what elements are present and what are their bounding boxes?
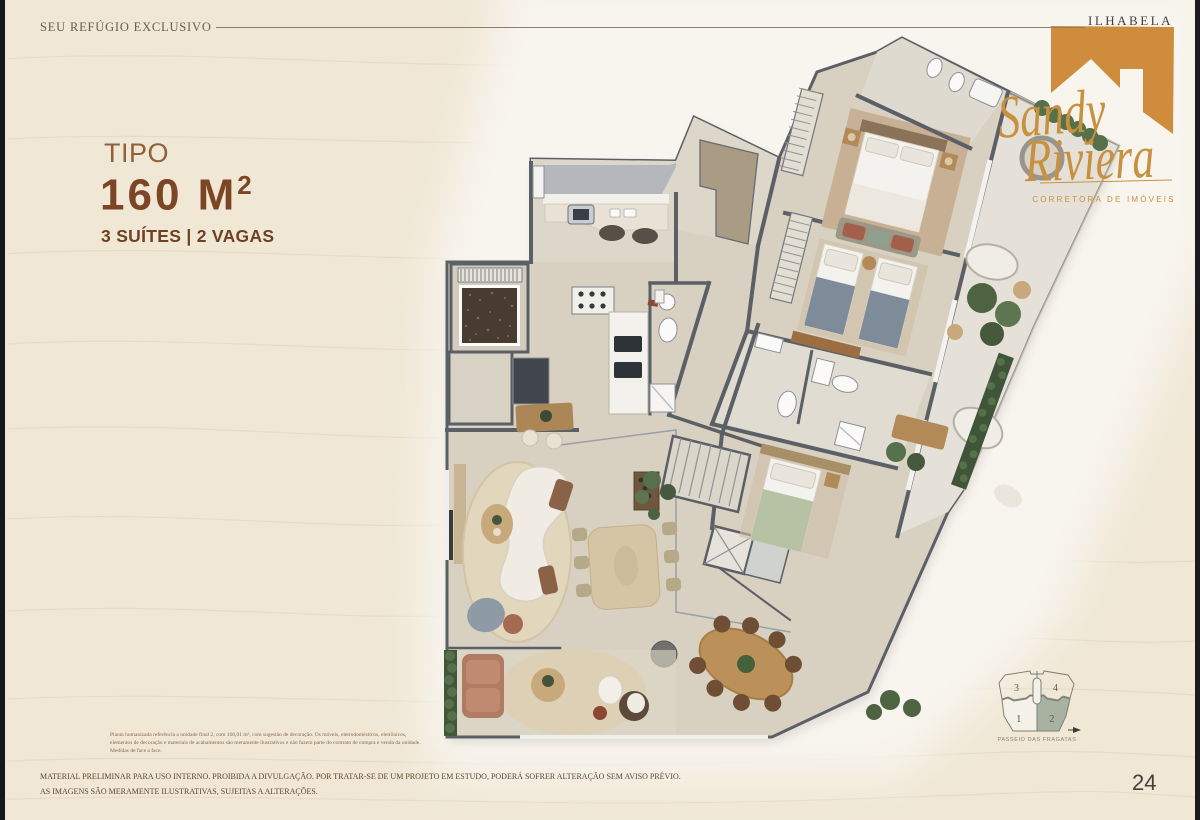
svg-text:1: 1 [1016,713,1022,725]
svg-text:3: 3 [1014,683,1019,694]
svg-text:CORRETORA DE IMÓVEIS: CORRETORA DE IMÓVEIS [1032,195,1175,204]
svg-text:PASSEIO DAS FRAGATAS: PASSEIO DAS FRAGATAS [998,737,1077,743]
svg-text:Riviera: Riviera [1022,124,1155,195]
svg-text:2: 2 [1049,713,1055,725]
svg-text:4: 4 [1053,683,1058,694]
